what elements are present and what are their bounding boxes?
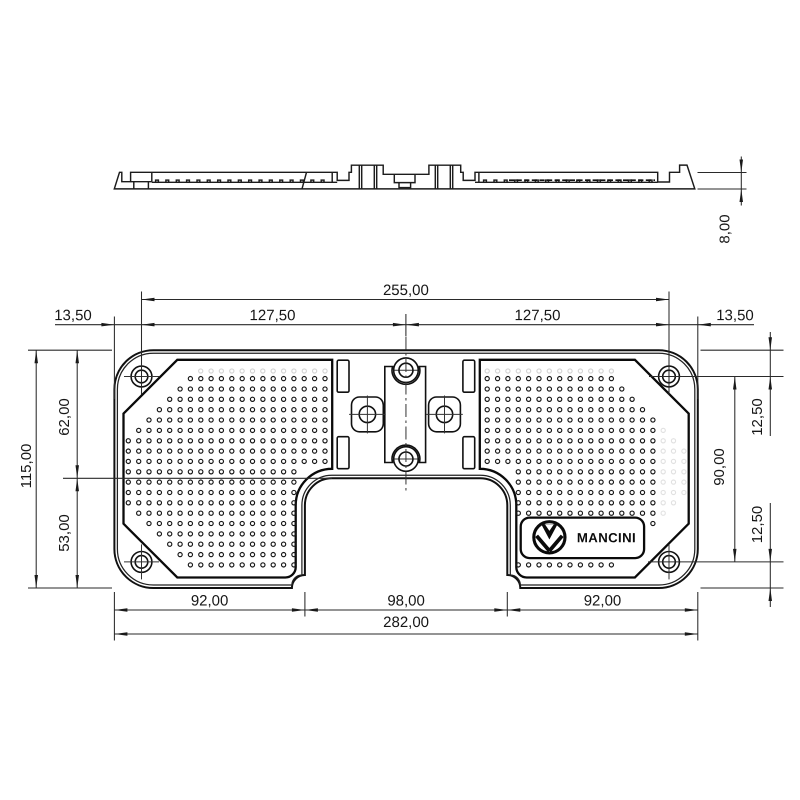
svg-text:98,00: 98,00	[387, 592, 425, 609]
svg-text:53,00: 53,00	[56, 514, 73, 552]
svg-text:90,00: 90,00	[711, 448, 728, 486]
svg-text:92,00: 92,00	[191, 592, 229, 609]
svg-text:8,00: 8,00	[717, 214, 734, 243]
svg-text:127,50: 127,50	[250, 307, 296, 324]
svg-text:92,00: 92,00	[584, 592, 622, 609]
svg-text:12,50: 12,50	[749, 398, 766, 436]
svg-text:MANCINI: MANCINI	[577, 530, 636, 545]
svg-text:13,50: 13,50	[54, 307, 92, 324]
svg-text:62,00: 62,00	[56, 398, 73, 436]
svg-text:255,00: 255,00	[383, 282, 429, 299]
svg-text:12,50: 12,50	[749, 506, 766, 544]
svg-text:13,50: 13,50	[716, 307, 754, 324]
svg-text:282,00: 282,00	[383, 614, 429, 631]
svg-text:115,00: 115,00	[18, 444, 35, 489]
svg-text:127,50: 127,50	[515, 307, 561, 324]
